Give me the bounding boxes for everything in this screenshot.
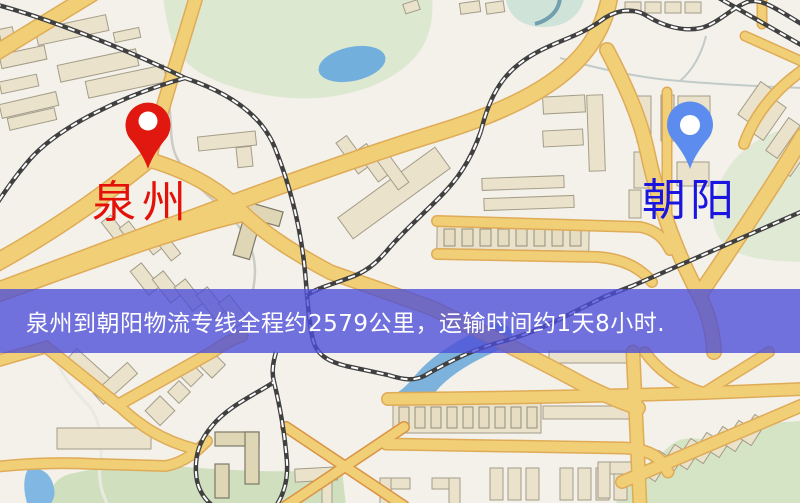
route-info-banner: 泉州到朝阳物流专线全程约2579公里，运输时间约1天8小时.	[0, 289, 800, 353]
route-info-text: 泉州到朝阳物流专线全程约2579公里，运输时间约1天8小时.	[26, 304, 665, 338]
map-screenshot: 泉州 朝阳 泉州到朝阳物流专线全程约2579公里，运输时间约1天8小时.	[0, 0, 800, 503]
map-canvas[interactable]	[0, 0, 800, 503]
